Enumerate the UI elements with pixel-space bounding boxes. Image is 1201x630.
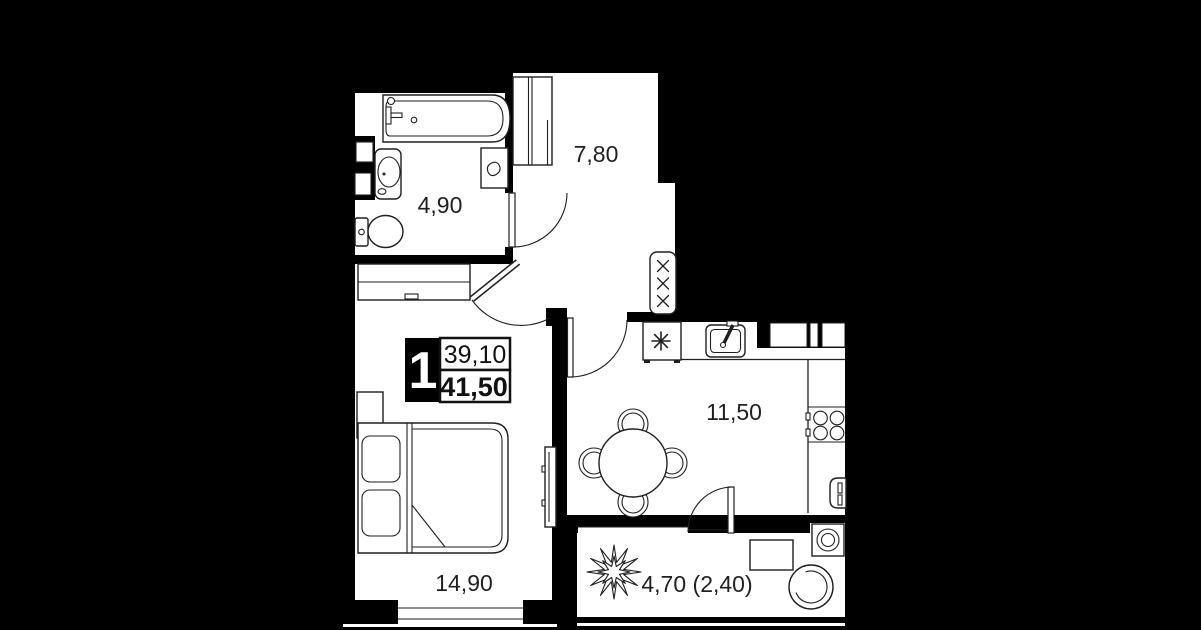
bedroom-area-label: 14,90 xyxy=(435,570,493,596)
bedroom-wardrobe xyxy=(358,264,470,300)
bathroom-area-label: 4,90 xyxy=(418,192,463,218)
pillow xyxy=(362,490,400,536)
duct-shaft xyxy=(355,173,371,195)
kitchen-sink xyxy=(706,321,745,357)
floor-plan-canvas: 4,90 7,80 11,50 14,90 4,70 (2,40) 1 39,1… xyxy=(0,0,1201,630)
dining-table xyxy=(599,429,667,497)
hallway-area-label: 7,80 xyxy=(574,141,619,167)
total-area-value: 41,50 xyxy=(440,372,508,402)
pillow xyxy=(362,436,400,482)
coat-rack xyxy=(650,252,676,314)
kitchen-area-label: 11,50 xyxy=(706,399,762,425)
wall-balcony-right-of-door xyxy=(737,515,810,533)
rooms-count: 1 xyxy=(409,342,438,400)
bathtub xyxy=(383,95,510,142)
wall-corner-stub xyxy=(546,308,553,326)
balcony-glazing-strip xyxy=(578,527,688,533)
toilet xyxy=(355,216,403,248)
balcony-facade-sliver xyxy=(577,623,845,626)
floor-plan-drawing: 4,90 7,80 11,50 14,90 4,70 (2,40) 1 39,1… xyxy=(0,0,1201,630)
bedroom-window xyxy=(398,600,523,624)
balcony-chair xyxy=(789,565,833,609)
balcony-area-label: 4,70 (2,40) xyxy=(641,571,752,597)
wall-door-stub xyxy=(505,247,513,264)
wall-bathroom-bedroom xyxy=(343,255,513,264)
vent-box xyxy=(643,322,681,363)
wall-dining-balcony xyxy=(552,515,688,527)
washing-machine xyxy=(812,524,844,556)
balcony-table xyxy=(750,540,793,570)
fridge xyxy=(830,478,846,508)
bed xyxy=(358,423,508,553)
duct-shaft xyxy=(770,323,807,347)
wall-kitchen-right xyxy=(845,312,860,620)
duct-shaft xyxy=(822,323,845,347)
washbasin xyxy=(375,149,401,199)
bathroom-cabinet xyxy=(481,148,508,188)
duct-shaft xyxy=(810,323,818,347)
wall-over-washer xyxy=(810,515,845,523)
facade-sliver xyxy=(343,624,557,627)
living-area-value: 39,10 xyxy=(444,341,507,369)
duct-shaft xyxy=(356,142,373,162)
wall-balcony-bottom xyxy=(577,617,845,623)
unit-info-badge: 1 39,10 41,50 xyxy=(405,338,510,402)
hall-wardrobe xyxy=(513,77,552,165)
wall-balcony-left xyxy=(567,533,577,623)
